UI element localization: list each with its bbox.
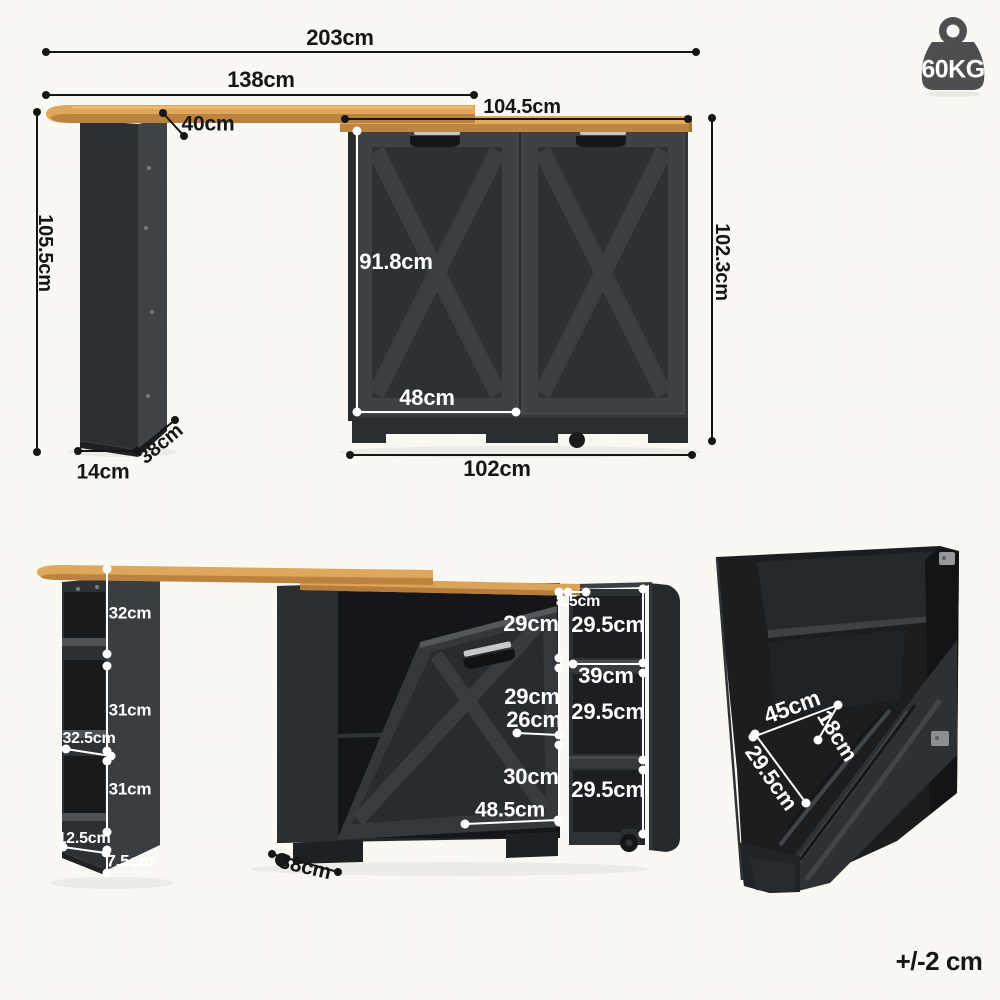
dim-shelf-bottom-depth-label: 12.5cm xyxy=(57,831,110,847)
dim-cart-depth-label: 39cm xyxy=(578,665,633,687)
weight-badge-value: 60KG xyxy=(921,58,984,83)
caster-wheel xyxy=(569,432,585,448)
back-panel xyxy=(649,583,680,852)
dim-cart-top-label: 29.5cm xyxy=(571,614,644,636)
dim-plinth-height-label: 7.5cm xyxy=(106,853,153,870)
dim-gap-width-label: 8.5cm xyxy=(556,594,600,610)
bar-leg xyxy=(80,118,167,457)
hinge xyxy=(931,731,949,746)
dim-door-width-label: 48cm xyxy=(399,387,454,409)
dim-cabinet-top-width-label: 104.5cm xyxy=(483,97,561,117)
dim-door-height-label: 91.8cm xyxy=(359,251,432,273)
dim-leg-width-label: 14cm xyxy=(77,462,130,483)
dim-cabinet-width-label: 102cm xyxy=(463,458,531,480)
dim-tilt-door-width-label: 48.5cm xyxy=(475,800,545,821)
dim-top-compartment-label: 29cm xyxy=(503,613,558,635)
dim-middle-opening-depth-label: 26cm xyxy=(506,709,561,731)
dim-bottom-compartment-label: 30cm xyxy=(503,766,558,788)
cabinet-base xyxy=(352,418,688,443)
dim-shelf-bottom-label: 31cm xyxy=(109,781,152,798)
assembled-view xyxy=(46,105,702,458)
tolerance-note: +/-2 cm xyxy=(896,948,983,974)
dim-cart-bottom-label: 29.5cm xyxy=(571,779,644,801)
dim-bar-height-label: 105.5cm xyxy=(35,214,55,292)
dim-bar-depth-label: 40cm xyxy=(182,114,235,135)
dim-shelf-middle-label: 31cm xyxy=(109,702,152,719)
dimension-diagram: 203cm 138cm 104.5cm 40cm 105.5cm 102.3cm… xyxy=(0,0,1000,1000)
bar-tabletop xyxy=(46,105,475,123)
dim-middle-compartment-label: 29cm xyxy=(504,686,559,708)
dim-bar-length-label: 138cm xyxy=(227,69,295,91)
dim-shelf-middle-depth-label: 32.5cm xyxy=(62,731,115,747)
barn-door-right xyxy=(522,130,684,414)
dim-cabinet-height-label: 102.3cm xyxy=(712,223,732,301)
dim-shelf-top-label: 32cm xyxy=(109,605,152,622)
hinge xyxy=(939,552,955,565)
furniture-illustration xyxy=(0,0,1000,1000)
dim-total-width-label: 203cm xyxy=(306,27,374,49)
dim-cart-middle-label: 29.5cm xyxy=(571,701,644,723)
